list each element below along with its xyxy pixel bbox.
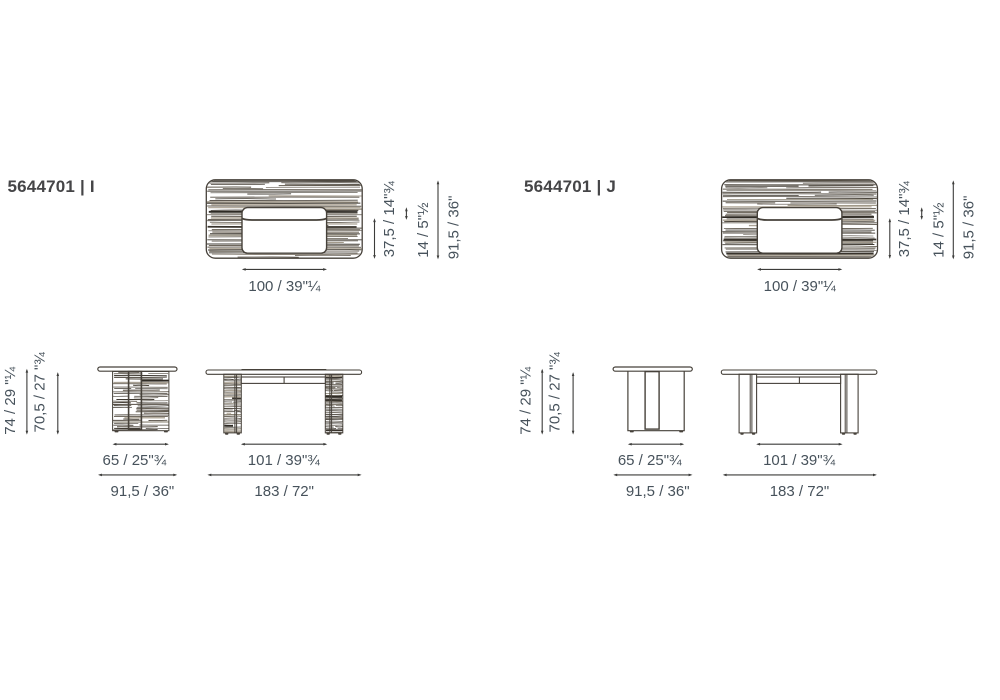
svg-text:5644701 | J: 5644701 | J <box>524 177 616 196</box>
svg-text:183 / 72": 183 / 72" <box>770 483 830 500</box>
svg-text:37,5 / 14"¾: 37,5 / 14"¾ <box>896 181 913 258</box>
svg-text:100 / 39"¼: 100 / 39"¼ <box>248 278 321 295</box>
svg-text:65 / 25"¾: 65 / 25"¾ <box>103 452 167 469</box>
svg-text:14 / 5"½: 14 / 5"½ <box>931 202 948 258</box>
svg-text:65 / 25"¾: 65 / 25"¾ <box>618 452 682 469</box>
svg-text:101 / 39"¾: 101 / 39"¾ <box>763 452 836 469</box>
svg-text:101 / 39"¾: 101 / 39"¾ <box>248 452 321 469</box>
svg-text:14 / 5"½: 14 / 5"½ <box>415 202 432 258</box>
svg-text:5644701 | I: 5644701 | I <box>8 177 95 196</box>
svg-text:91,5 / 36": 91,5 / 36" <box>961 196 978 260</box>
svg-text:91,5 / 36": 91,5 / 36" <box>445 196 462 260</box>
svg-text:74 / 29 "¼: 74 / 29 "¼ <box>518 366 535 434</box>
svg-text:91,5 / 36": 91,5 / 36" <box>626 483 690 500</box>
svg-text:74 / 29 "¼: 74 / 29 "¼ <box>2 366 19 434</box>
svg-text:70,5 / 27 "¾: 70,5 / 27 "¾ <box>31 352 48 433</box>
svg-text:183 / 72": 183 / 72" <box>254 483 314 500</box>
svg-text:100 / 39"¼: 100 / 39"¼ <box>764 278 837 295</box>
svg-text:37,5 / 14"¾: 37,5 / 14"¾ <box>381 181 398 258</box>
svg-text:70,5 / 27 "¾: 70,5 / 27 "¾ <box>547 352 564 433</box>
svg-text:91,5 / 36": 91,5 / 36" <box>111 483 175 500</box>
